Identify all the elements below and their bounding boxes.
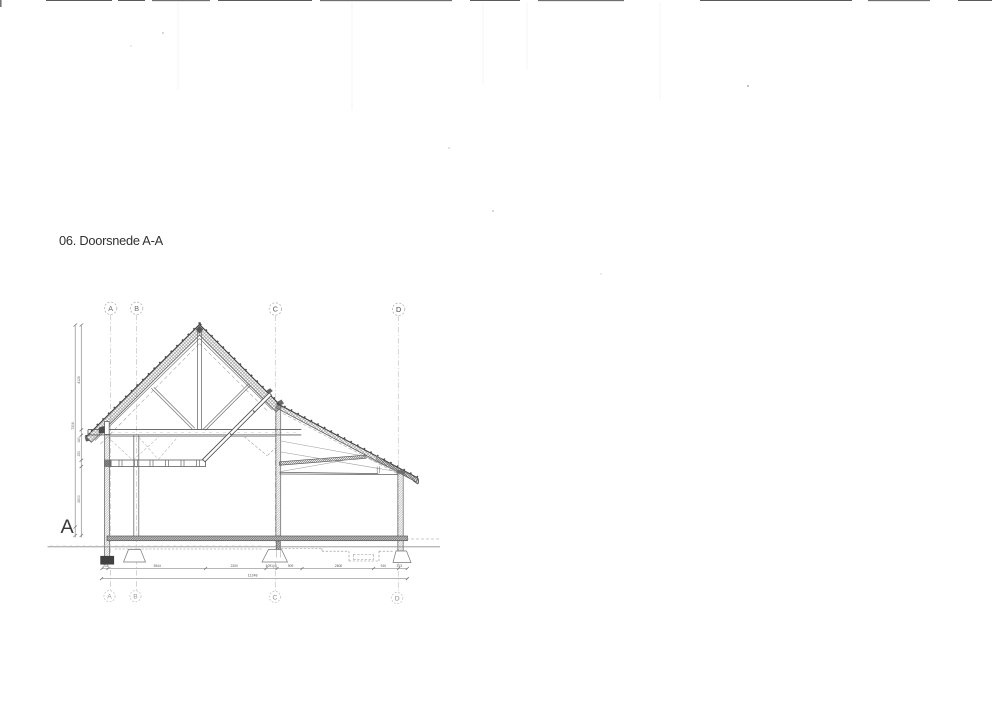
svg-text:910: 910 — [381, 564, 387, 568]
svg-text:7306: 7306 — [71, 422, 75, 430]
svg-text:A: A — [107, 594, 112, 601]
svg-text:A: A — [61, 516, 75, 538]
svg-text:3544: 3544 — [154, 564, 162, 568]
svg-text:B: B — [133, 594, 138, 601]
svg-text:A: A — [108, 304, 113, 313]
svg-text:250: 250 — [77, 451, 81, 457]
svg-text:4091(4): 4091(4) — [266, 564, 277, 568]
svg-text:D: D — [395, 595, 400, 602]
svg-text:11248: 11248 — [248, 574, 258, 578]
svg-text:2600: 2600 — [77, 495, 81, 503]
svg-text:C: C — [273, 594, 278, 601]
svg-text:2200: 2200 — [231, 564, 239, 568]
svg-text:C: C — [273, 305, 278, 314]
svg-text:2600: 2600 — [335, 564, 343, 568]
svg-text:909: 909 — [288, 564, 294, 568]
svg-text:313: 313 — [396, 564, 402, 568]
svg-text:4126: 4126 — [77, 376, 81, 384]
svg-text:180: 180 — [77, 437, 81, 443]
svg-text:06. Doorsnede A-A: 06. Doorsnede A-A — [59, 233, 164, 248]
svg-text:B: B — [134, 304, 139, 313]
svg-text:D: D — [396, 305, 401, 314]
svg-text:216: 216 — [103, 564, 109, 568]
